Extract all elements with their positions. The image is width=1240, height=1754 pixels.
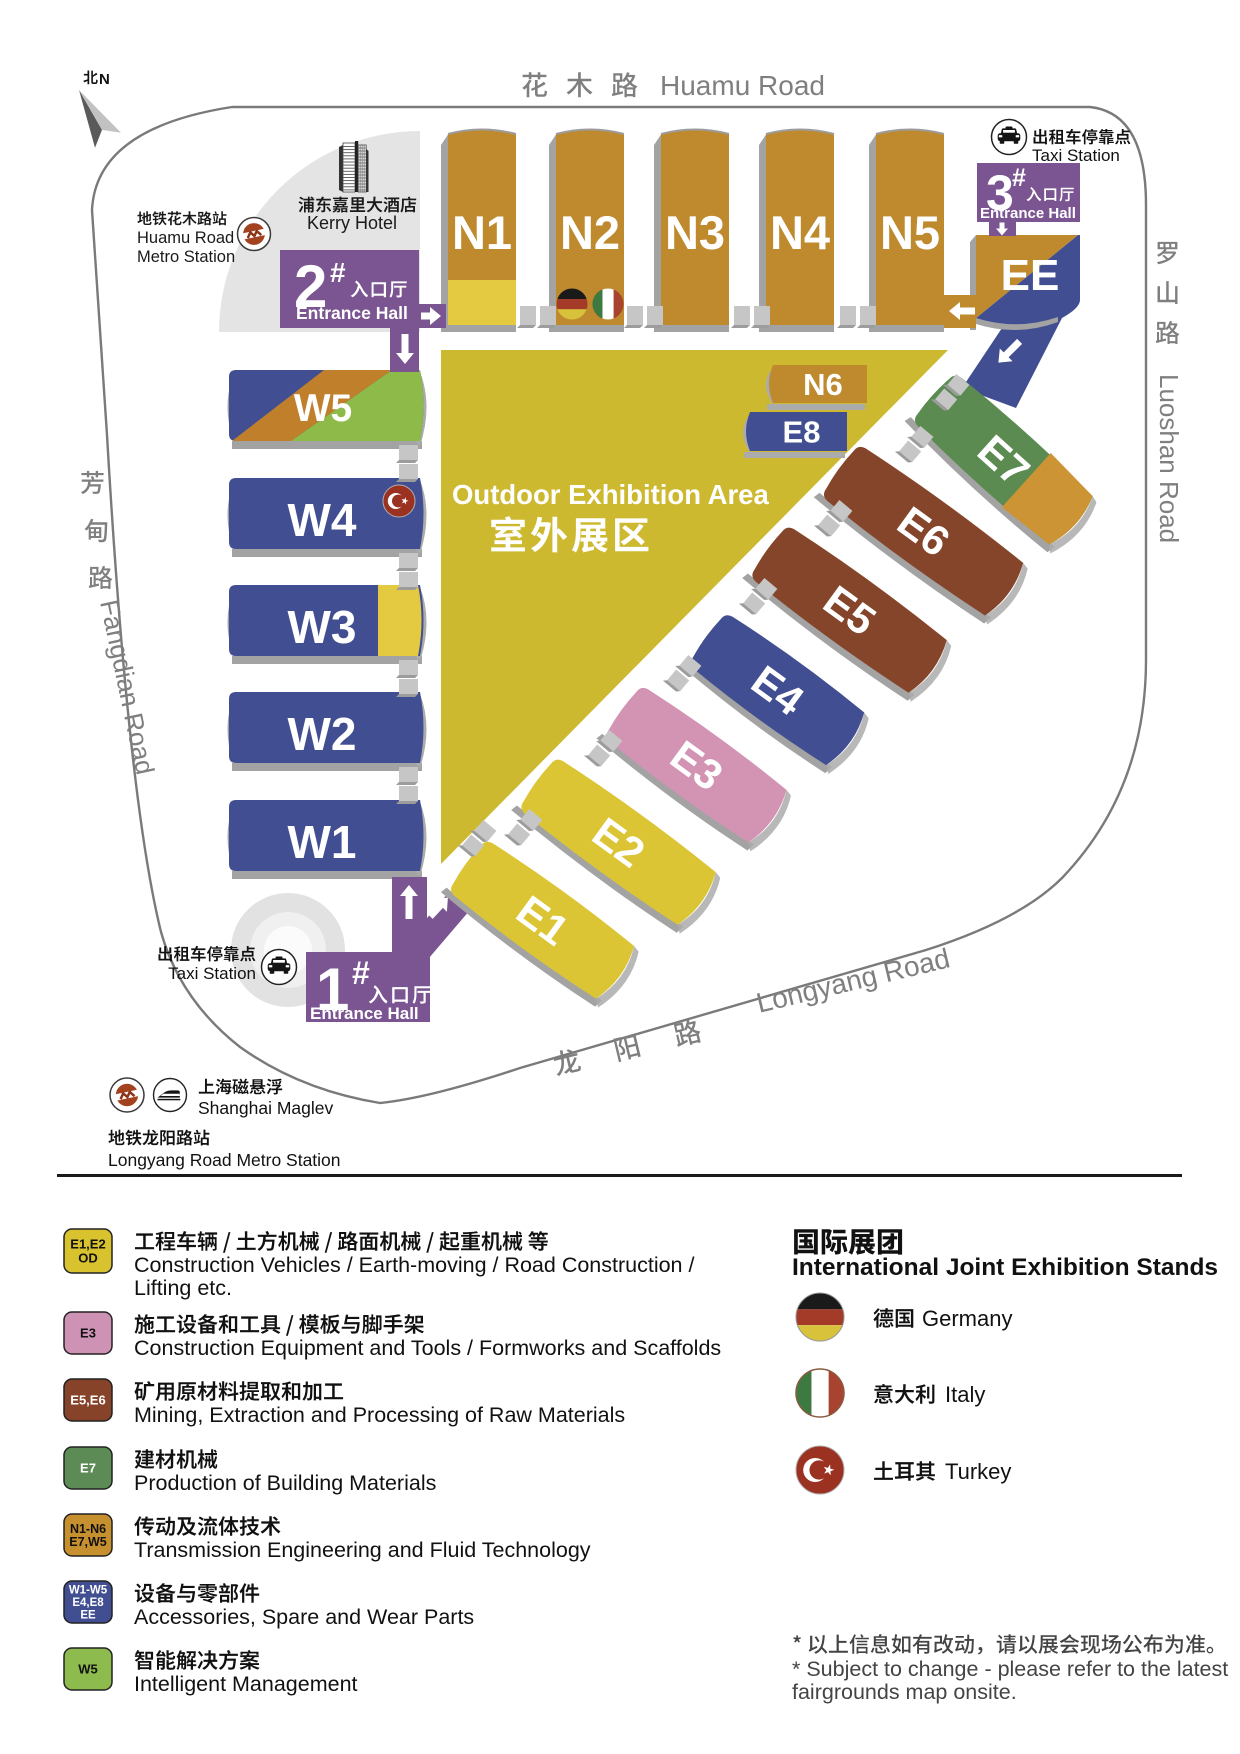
svg-text:N1-N6: N1-N6 [70, 1522, 106, 1536]
svg-text:N4: N4 [770, 206, 830, 259]
svg-text:EE: EE [80, 1610, 96, 1622]
svg-text:#: # [330, 257, 346, 288]
svg-text:OD: OD [78, 1251, 98, 1266]
svg-text:W1: W1 [288, 816, 357, 868]
svg-text:Luoshan Road: Luoshan Road [1154, 374, 1184, 543]
svg-text:N: N [99, 71, 110, 88]
svg-text:Production of Building Materia: Production of Building Materials [134, 1471, 436, 1495]
svg-text:Entrance Hall: Entrance Hall [296, 303, 408, 323]
svg-text:#: # [1012, 164, 1026, 192]
svg-text:International Joint Exhibition: International Joint Exhibition Stands [792, 1254, 1218, 1281]
svg-text:W2: W2 [288, 708, 357, 760]
svg-text:Turkey: Turkey [945, 1459, 1011, 1484]
svg-text:Shanghai Maglev: Shanghai Maglev [198, 1098, 333, 1118]
svg-text:E4,E8: E4,E8 [72, 1597, 104, 1609]
svg-text:N6: N6 [803, 367, 843, 402]
svg-text:Kerry Hotel: Kerry Hotel [307, 213, 397, 233]
svg-text:W1-W5: W1-W5 [69, 1585, 108, 1597]
svg-text:E1,E2: E1,E2 [70, 1237, 105, 1252]
svg-text:E5,E6: E5,E6 [70, 1393, 105, 1408]
svg-text:Huamu Road: Huamu Road [137, 229, 234, 247]
svg-text:W5: W5 [78, 1662, 98, 1677]
svg-text:Italy: Italy [945, 1382, 985, 1407]
svg-text:N1: N1 [452, 206, 512, 259]
svg-text:Accessories, Spare and Wear Pa: Accessories, Spare and Wear Parts [134, 1605, 474, 1629]
svg-text:Construction Equipment and Too: Construction Equipment and Tools / Formw… [134, 1336, 721, 1360]
svg-text:Entrance Hall: Entrance Hall [980, 205, 1076, 222]
svg-text:Construction Vehicles / Earth-: Construction Vehicles / Earth-moving / R… [134, 1253, 694, 1277]
svg-text:Taxi Station: Taxi Station [1032, 146, 1120, 165]
svg-text:fairgrounds map onsite.: fairgrounds map onsite. [792, 1680, 1017, 1704]
svg-text:W4: W4 [288, 494, 357, 546]
svg-text:E7: E7 [80, 1461, 96, 1476]
svg-text:Transmission Engineering and F: Transmission Engineering and Fluid Techn… [134, 1538, 591, 1562]
svg-text:Intelligent Management: Intelligent Management [134, 1672, 358, 1696]
svg-text:Longyang Road Metro Station: Longyang Road Metro Station [108, 1150, 341, 1170]
svg-text:Outdoor Exhibition Area: Outdoor Exhibition Area [452, 479, 769, 510]
svg-text:E7,W5: E7,W5 [69, 1535, 107, 1549]
svg-text:Huamu Road: Huamu Road [660, 70, 825, 101]
svg-text:Entrance Hall: Entrance Hall [310, 1004, 419, 1023]
svg-text:Lifting etc.: Lifting etc. [134, 1276, 232, 1300]
svg-text:Mining, Extraction and Process: Mining, Extraction and Processing of Raw… [134, 1403, 625, 1427]
svg-text:Germany: Germany [922, 1306, 1012, 1331]
svg-text:N2: N2 [560, 206, 620, 259]
svg-text:Metro Station: Metro Station [137, 248, 235, 266]
svg-text:Taxi Station: Taxi Station [168, 964, 256, 983]
svg-text:E3: E3 [80, 1326, 96, 1341]
svg-text:* Subject to change - please r: * Subject to change - please refer to th… [792, 1657, 1228, 1681]
svg-text:N5: N5 [880, 206, 940, 259]
svg-text:N3: N3 [665, 206, 725, 259]
svg-text:W3: W3 [288, 601, 357, 653]
svg-text:EE: EE [1001, 251, 1060, 300]
svg-text:W5: W5 [294, 387, 353, 430]
svg-text:#: # [352, 955, 370, 991]
svg-text:E8: E8 [783, 415, 821, 450]
